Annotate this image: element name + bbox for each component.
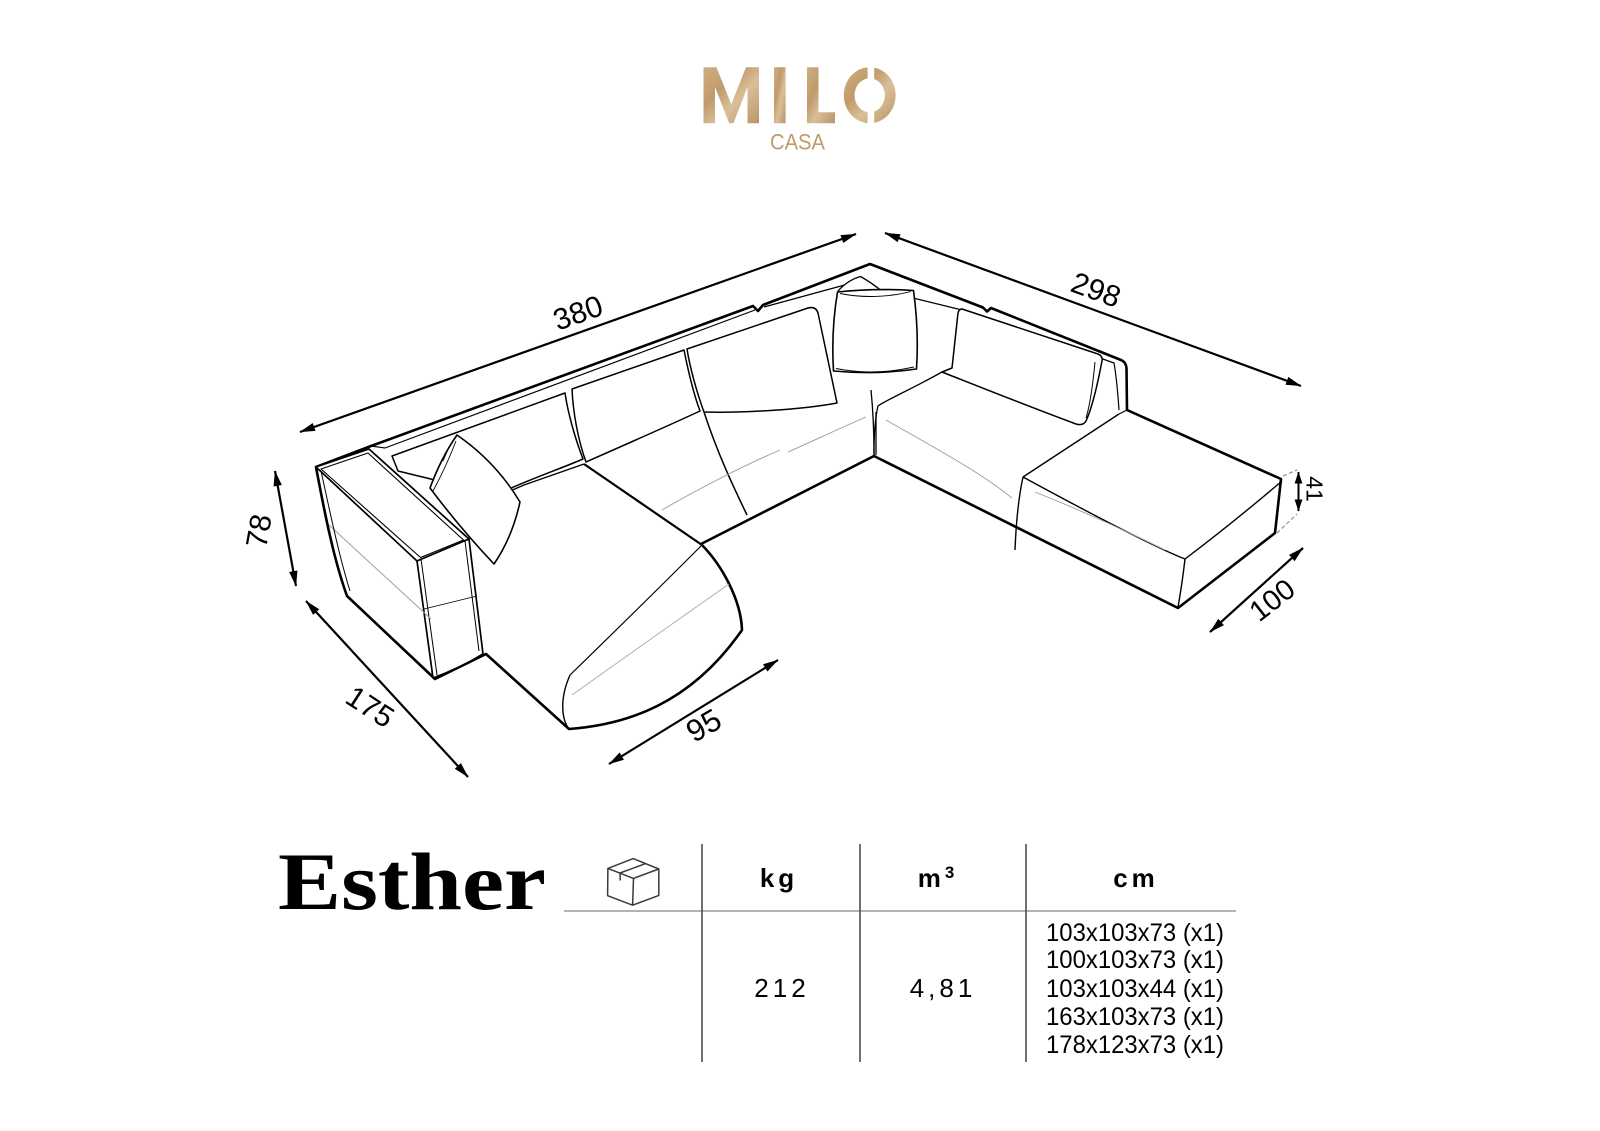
svg-text:Esther: Esther xyxy=(278,836,546,927)
svg-text:103x103x73 (x1): 103x103x73 (x1) xyxy=(1046,919,1224,947)
svg-text:kg: kg xyxy=(760,863,798,893)
svg-text:4,81: 4,81 xyxy=(910,973,977,1003)
svg-text:CASA: CASA xyxy=(770,130,825,155)
svg-text:100x103x73 (x1): 100x103x73 (x1) xyxy=(1046,946,1224,974)
svg-text:103x103x44 (x1): 103x103x44 (x1) xyxy=(1046,975,1224,1003)
svg-text:41: 41 xyxy=(1302,476,1328,502)
svg-text:163x103x73 (x1): 163x103x73 (x1) xyxy=(1046,1003,1224,1031)
svg-text:178x123x73 (x1): 178x123x73 (x1) xyxy=(1046,1031,1224,1059)
svg-text:78: 78 xyxy=(240,512,278,551)
svg-text:212: 212 xyxy=(754,973,809,1003)
svg-text:cm: cm xyxy=(1113,863,1159,893)
